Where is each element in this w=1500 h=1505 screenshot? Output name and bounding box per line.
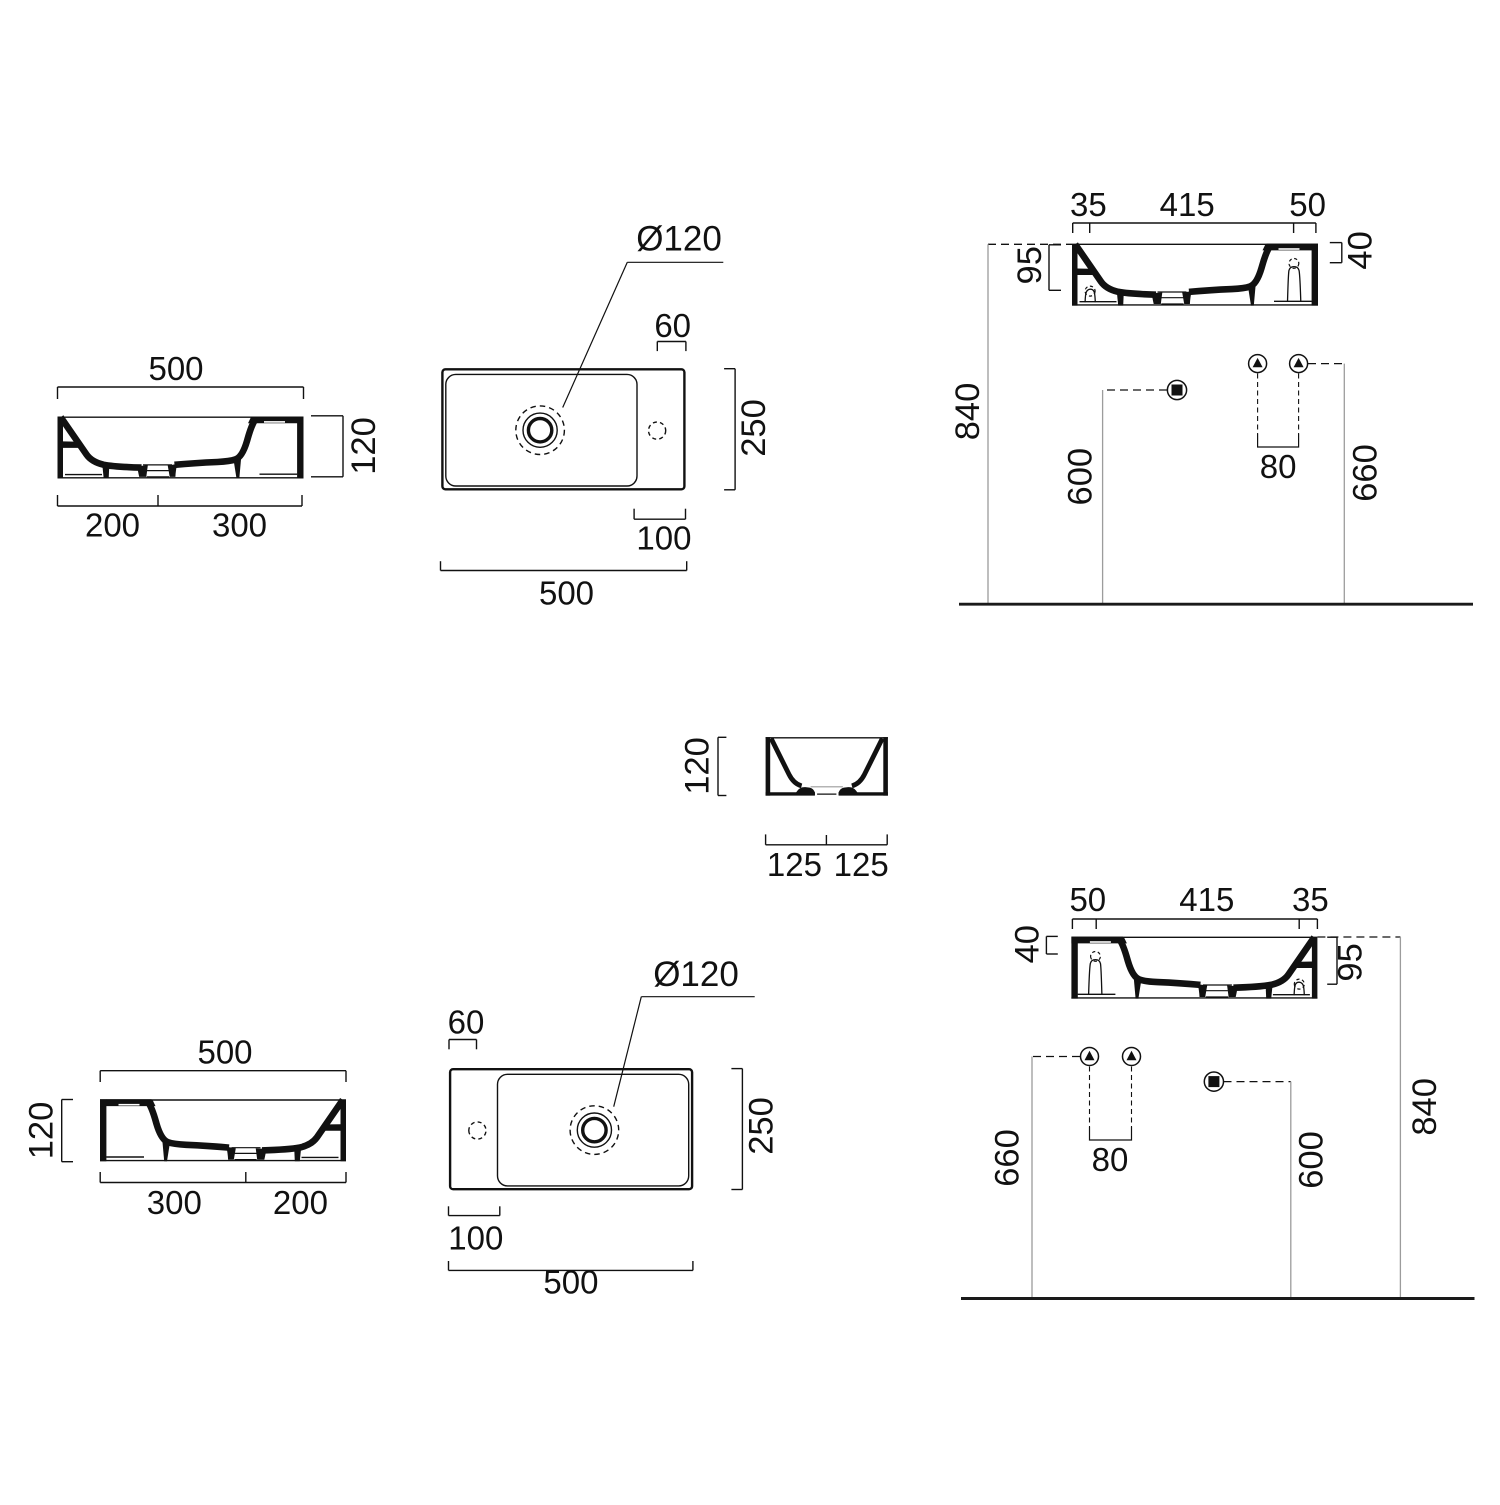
svg-text:840: 840 — [1406, 1078, 1444, 1136]
svg-text:250: 250 — [742, 1097, 780, 1155]
svg-text:60: 60 — [448, 1004, 485, 1041]
svg-text:95: 95 — [1331, 943, 1369, 981]
svg-text:Ø120: Ø120 — [636, 220, 722, 259]
svg-text:600: 600 — [1293, 1131, 1331, 1189]
svg-text:125: 125 — [767, 846, 822, 883]
svg-text:200: 200 — [85, 507, 140, 544]
svg-text:100: 100 — [636, 520, 691, 557]
svg-text:80: 80 — [1092, 1141, 1129, 1178]
svg-text:500: 500 — [148, 350, 203, 387]
svg-text:500: 500 — [539, 574, 594, 611]
svg-text:600: 600 — [1062, 448, 1100, 506]
svg-text:95: 95 — [1011, 246, 1049, 284]
svg-text:50: 50 — [1069, 881, 1106, 918]
svg-text:660: 660 — [1347, 444, 1385, 502]
svg-text:660: 660 — [989, 1129, 1027, 1187]
svg-text:80: 80 — [1260, 448, 1297, 485]
svg-text:35: 35 — [1070, 186, 1107, 223]
svg-text:125: 125 — [834, 846, 889, 883]
svg-text:40: 40 — [1341, 231, 1379, 269]
svg-text:50: 50 — [1289, 186, 1326, 223]
svg-text:300: 300 — [212, 507, 267, 544]
svg-text:500: 500 — [543, 1264, 598, 1301]
svg-text:415: 415 — [1179, 881, 1234, 918]
svg-text:250: 250 — [735, 399, 773, 457]
svg-text:Ø120: Ø120 — [653, 955, 739, 994]
svg-text:120: 120 — [23, 1102, 61, 1160]
svg-text:200: 200 — [273, 1184, 328, 1221]
svg-text:100: 100 — [448, 1219, 503, 1256]
svg-text:120: 120 — [345, 417, 383, 475]
svg-text:40: 40 — [1009, 925, 1047, 963]
svg-text:60: 60 — [654, 307, 691, 344]
svg-text:35: 35 — [1292, 881, 1329, 918]
svg-text:300: 300 — [147, 1184, 202, 1221]
svg-text:500: 500 — [197, 1034, 252, 1071]
svg-text:120: 120 — [678, 737, 716, 795]
svg-text:840: 840 — [949, 383, 987, 441]
svg-text:415: 415 — [1160, 186, 1215, 223]
